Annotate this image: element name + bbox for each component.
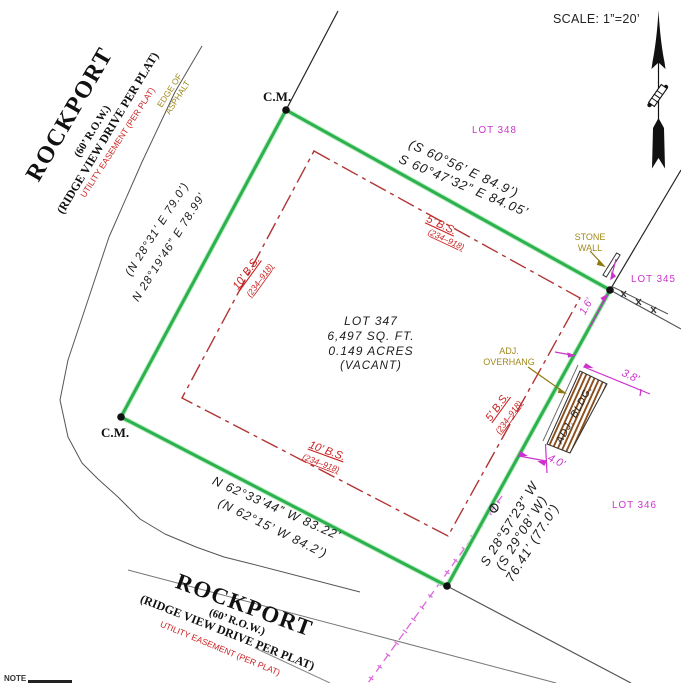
- svg-text:C.M.: C.M.: [101, 425, 129, 440]
- svg-text:LOT 347: LOT 347: [344, 314, 398, 328]
- svg-text:LOT 345: LOT 345: [631, 274, 676, 285]
- svg-text:NOTE: NOTE: [4, 674, 27, 683]
- svg-text:OVERHANG: OVERHANG: [483, 357, 535, 367]
- svg-text:STONE: STONE: [575, 232, 606, 242]
- svg-text:LOT 346: LOT 346: [612, 500, 657, 511]
- svg-text:0.149 ACRES: 0.149 ACRES: [328, 344, 413, 358]
- svg-text:ADJ.: ADJ.: [499, 346, 519, 356]
- svg-text:C.M.: C.M.: [263, 89, 291, 104]
- svg-text:6,497 SQ. FT.: 6,497 SQ. FT.: [327, 329, 414, 343]
- svg-text:(VACANT): (VACANT): [340, 360, 402, 372]
- svg-text:LOT 348: LOT 348: [472, 125, 517, 136]
- svg-text:SCALE: 1”=20’: SCALE: 1”=20’: [553, 12, 640, 26]
